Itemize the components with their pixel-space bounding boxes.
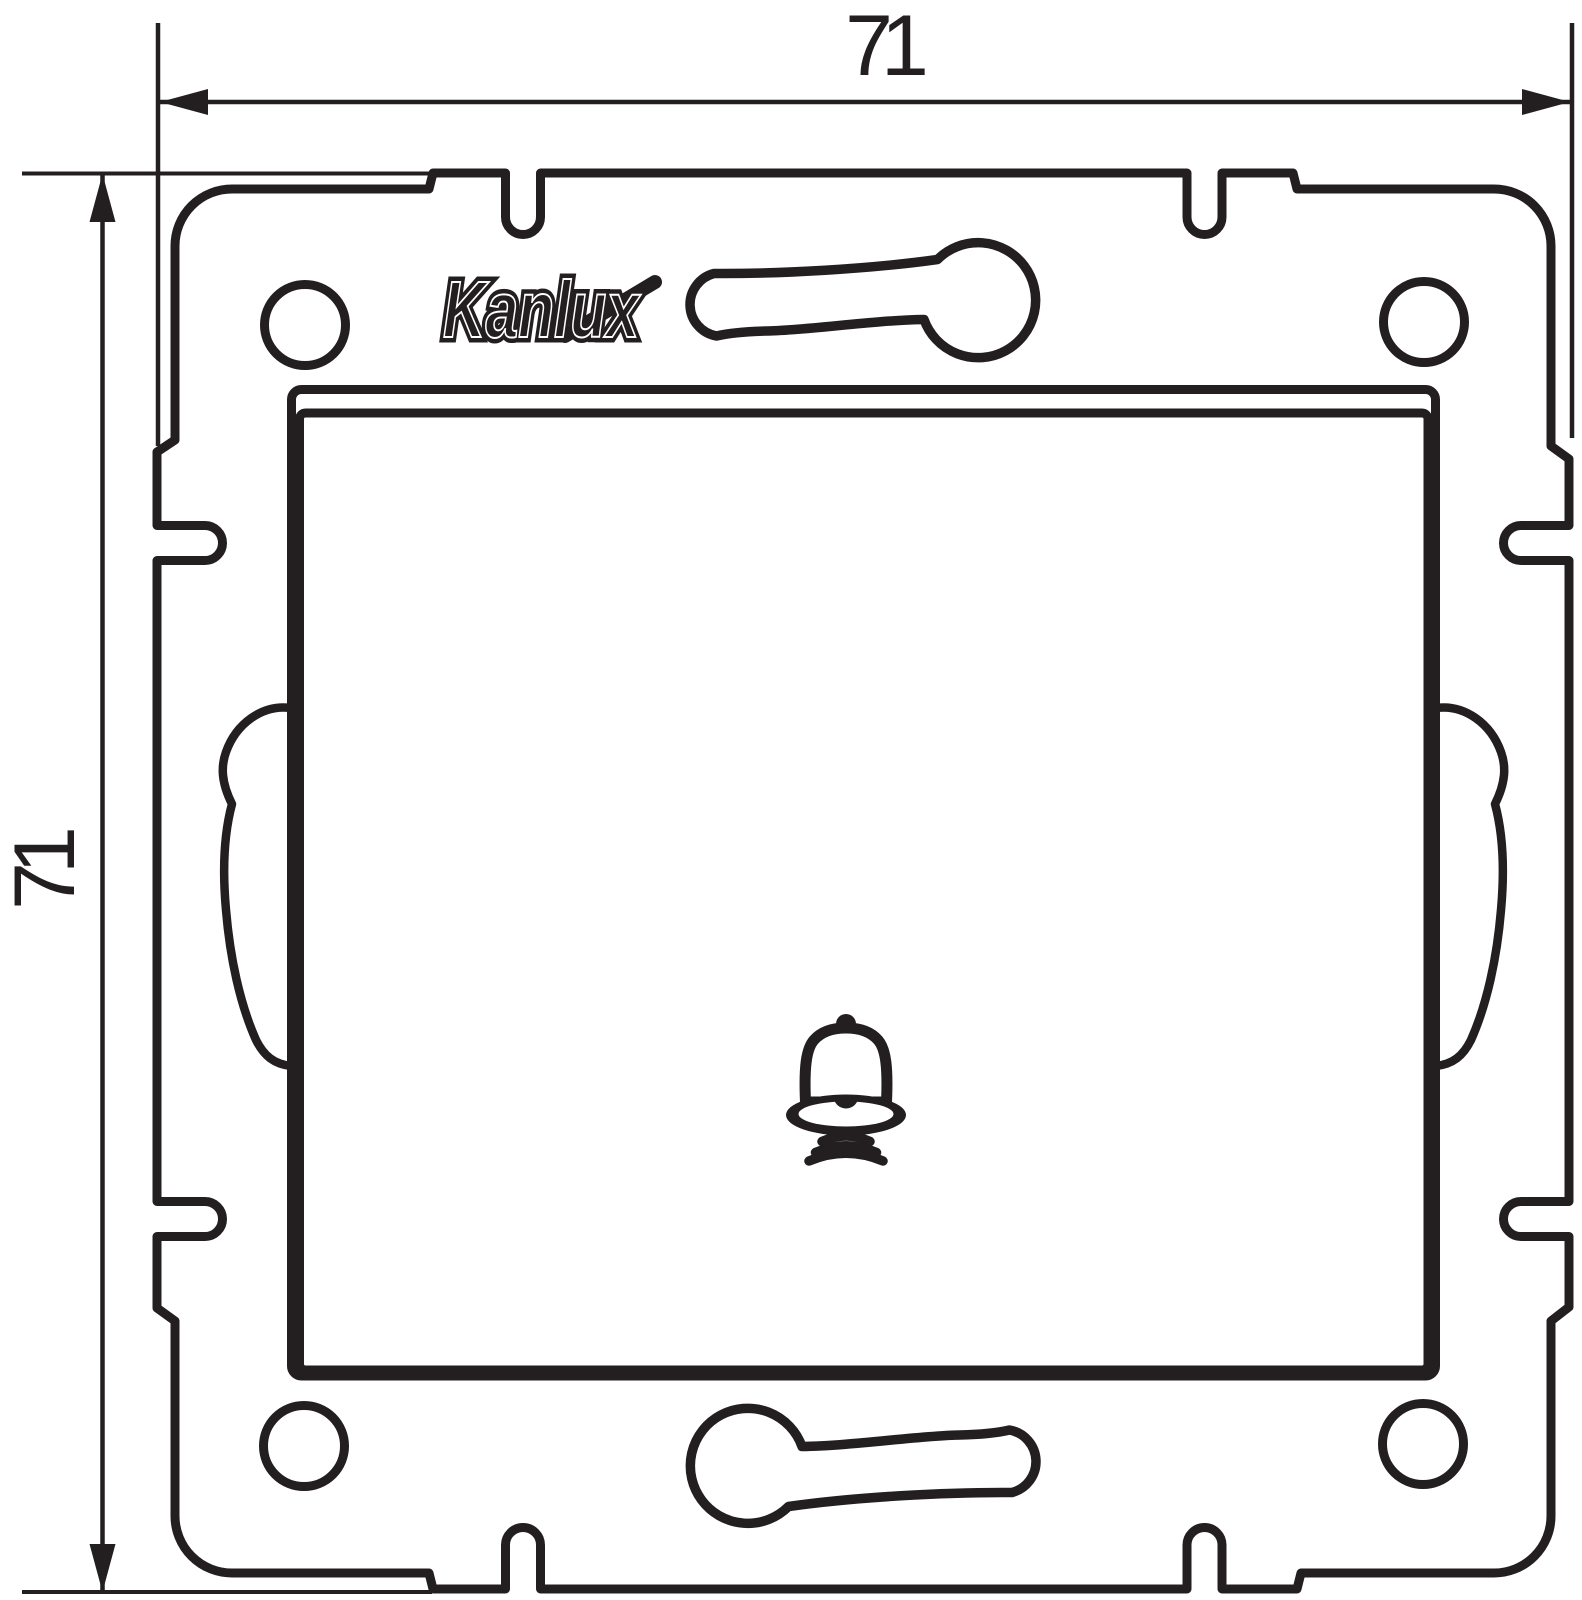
svg-text:71: 71 [845, 0, 925, 94]
svg-text:71: 71 [0, 830, 93, 910]
svg-text:Kanlux: Kanlux [443, 265, 642, 354]
